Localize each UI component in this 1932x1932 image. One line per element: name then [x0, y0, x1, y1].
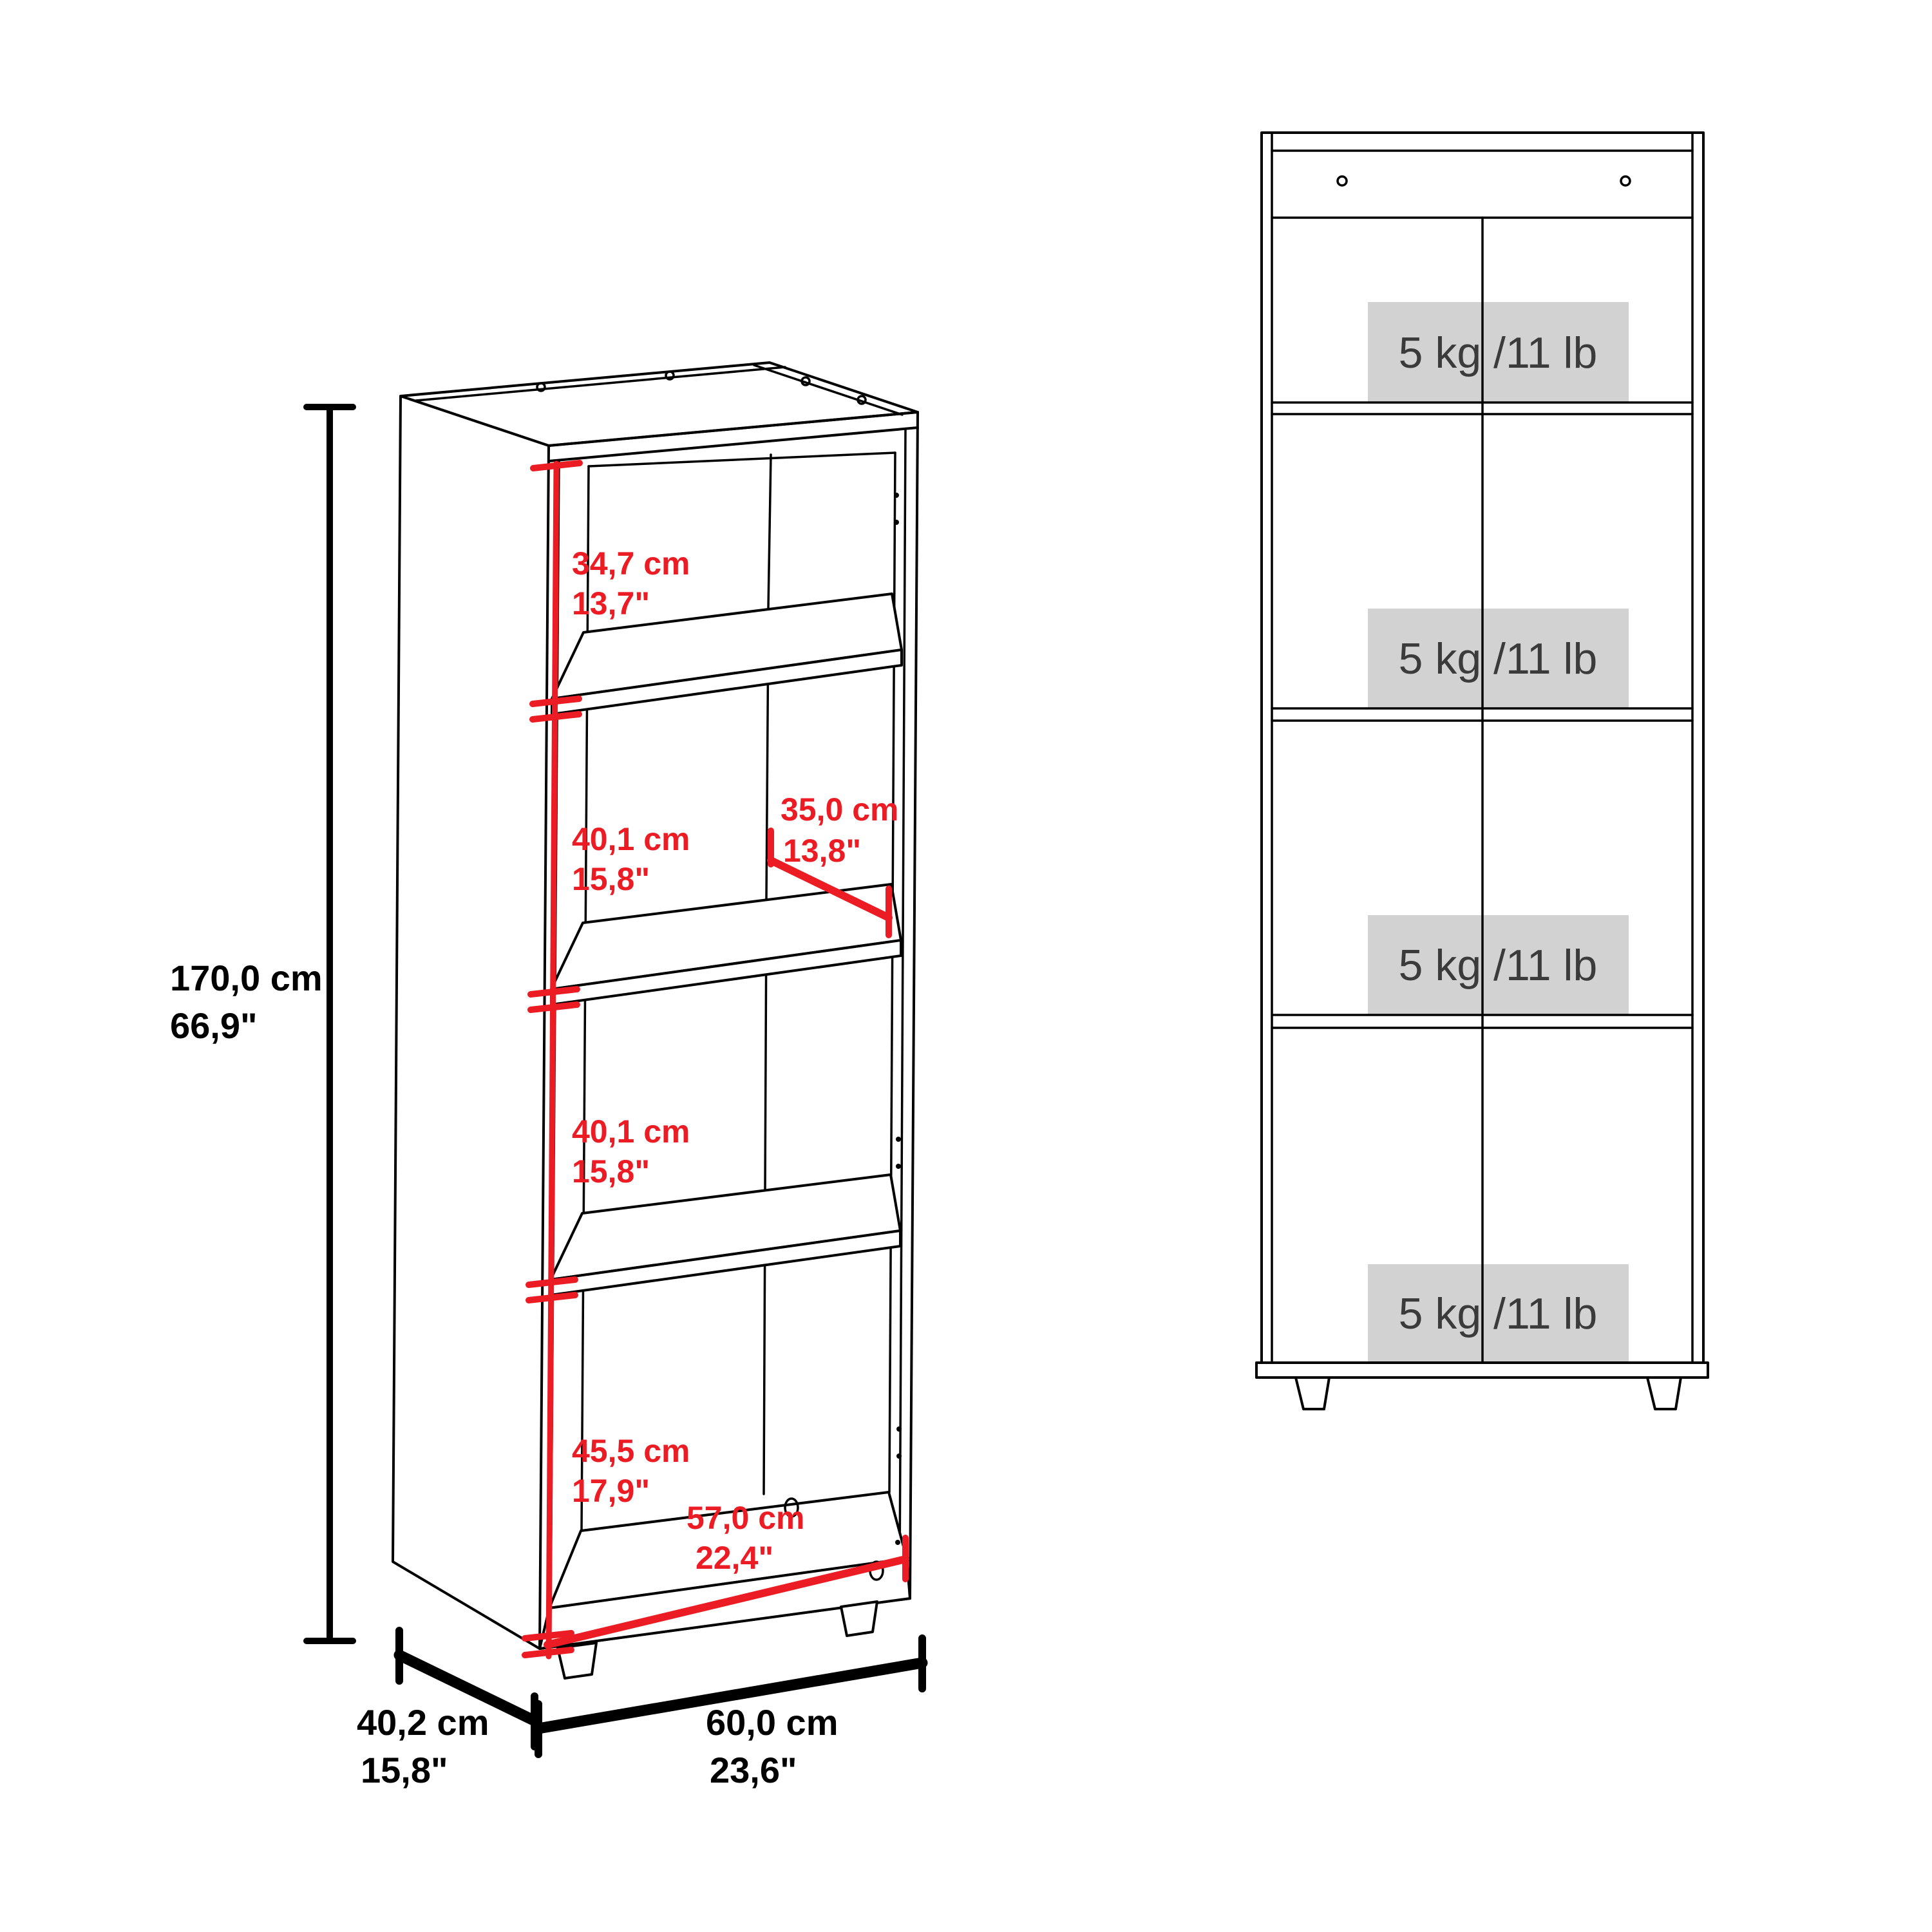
- overall-height-label-cm: 170,0 cm: [170, 958, 323, 998]
- compartment3-label-in: 15,8": [572, 1153, 650, 1189]
- overall-height-label-in: 66,9": [170, 1005, 258, 1046]
- front-view-left-foot: [1296, 1378, 1329, 1409]
- left-side-panel: [393, 396, 549, 1649]
- load-capacity-label-2: 5 kg /11 lb: [1399, 634, 1598, 683]
- screw-hole: [1338, 176, 1347, 185]
- base-width-label-in: 23,6": [710, 1750, 797, 1790]
- inner-right-stile-edge: [900, 430, 905, 1571]
- furniture-dimension-diagram: 34,7 cm 13,7" 40,1 cm 15,8" 40,1 cm 15,8…: [0, 0, 1932, 1932]
- base-depth-label-in: 15,8": [361, 1750, 448, 1790]
- base-rail: [1256, 1363, 1708, 1378]
- pin-hole: [894, 520, 899, 525]
- screw-hole: [1621, 176, 1630, 185]
- right-front-edge: [910, 412, 918, 1598]
- compartment2-label-in: 15,8": [572, 861, 650, 897]
- compartment3-label-cm: 40,1 cm: [572, 1113, 690, 1150]
- perspective-view: 34,7 cm 13,7" 40,1 cm 15,8" 40,1 cm 15,8…: [170, 363, 922, 1790]
- load-capacity-label-1: 5 kg /11 lb: [1399, 328, 1598, 377]
- pin-hole: [894, 493, 899, 498]
- pin-hole: [896, 1137, 901, 1142]
- compartment1-label-in: 13,7": [572, 585, 650, 621]
- ceiling-back-edge: [589, 453, 895, 466]
- compartment2-label-cm: 40,1 cm: [572, 821, 690, 857]
- load-capacity-label-3: 5 kg /11 lb: [1399, 941, 1598, 990]
- shelf-depth-label-cm: 35,0 cm: [781, 791, 898, 828]
- interior-width-label-in: 22,4": [696, 1540, 773, 1576]
- front-view: 5 kg /11 lb 5 kg /11 lb 5 kg /11 lb 5 kg…: [1256, 133, 1708, 1409]
- compartment4-label-cm: 45,5 cm: [572, 1433, 690, 1469]
- compartment4-label-in: 17,9": [572, 1473, 650, 1509]
- base-width-label-cm: 60,0 cm: [706, 1702, 838, 1743]
- interior-width-label-cm: 57,0 cm: [687, 1500, 804, 1536]
- pin-hole: [896, 1426, 902, 1432]
- pin-hole: [896, 1454, 902, 1459]
- diagram-page: 34,7 cm 13,7" 40,1 cm 15,8" 40,1 cm 15,8…: [0, 0, 1932, 1932]
- load-capacity-label-4: 5 kg /11 lb: [1399, 1289, 1598, 1338]
- base-depth-label-cm: 40,2 cm: [357, 1702, 489, 1743]
- pin-hole: [896, 1164, 901, 1169]
- front-right-foot: [841, 1602, 877, 1636]
- overall-height-dimension-line: [307, 407, 353, 1641]
- front-view-right-foot: [1647, 1378, 1681, 1409]
- pin-hole: [895, 1540, 900, 1545]
- shelf-depth-label-in: 13,8": [783, 833, 861, 869]
- compartment1-label-cm: 34,7 cm: [572, 545, 690, 582]
- shelf-3: [551, 1175, 900, 1295]
